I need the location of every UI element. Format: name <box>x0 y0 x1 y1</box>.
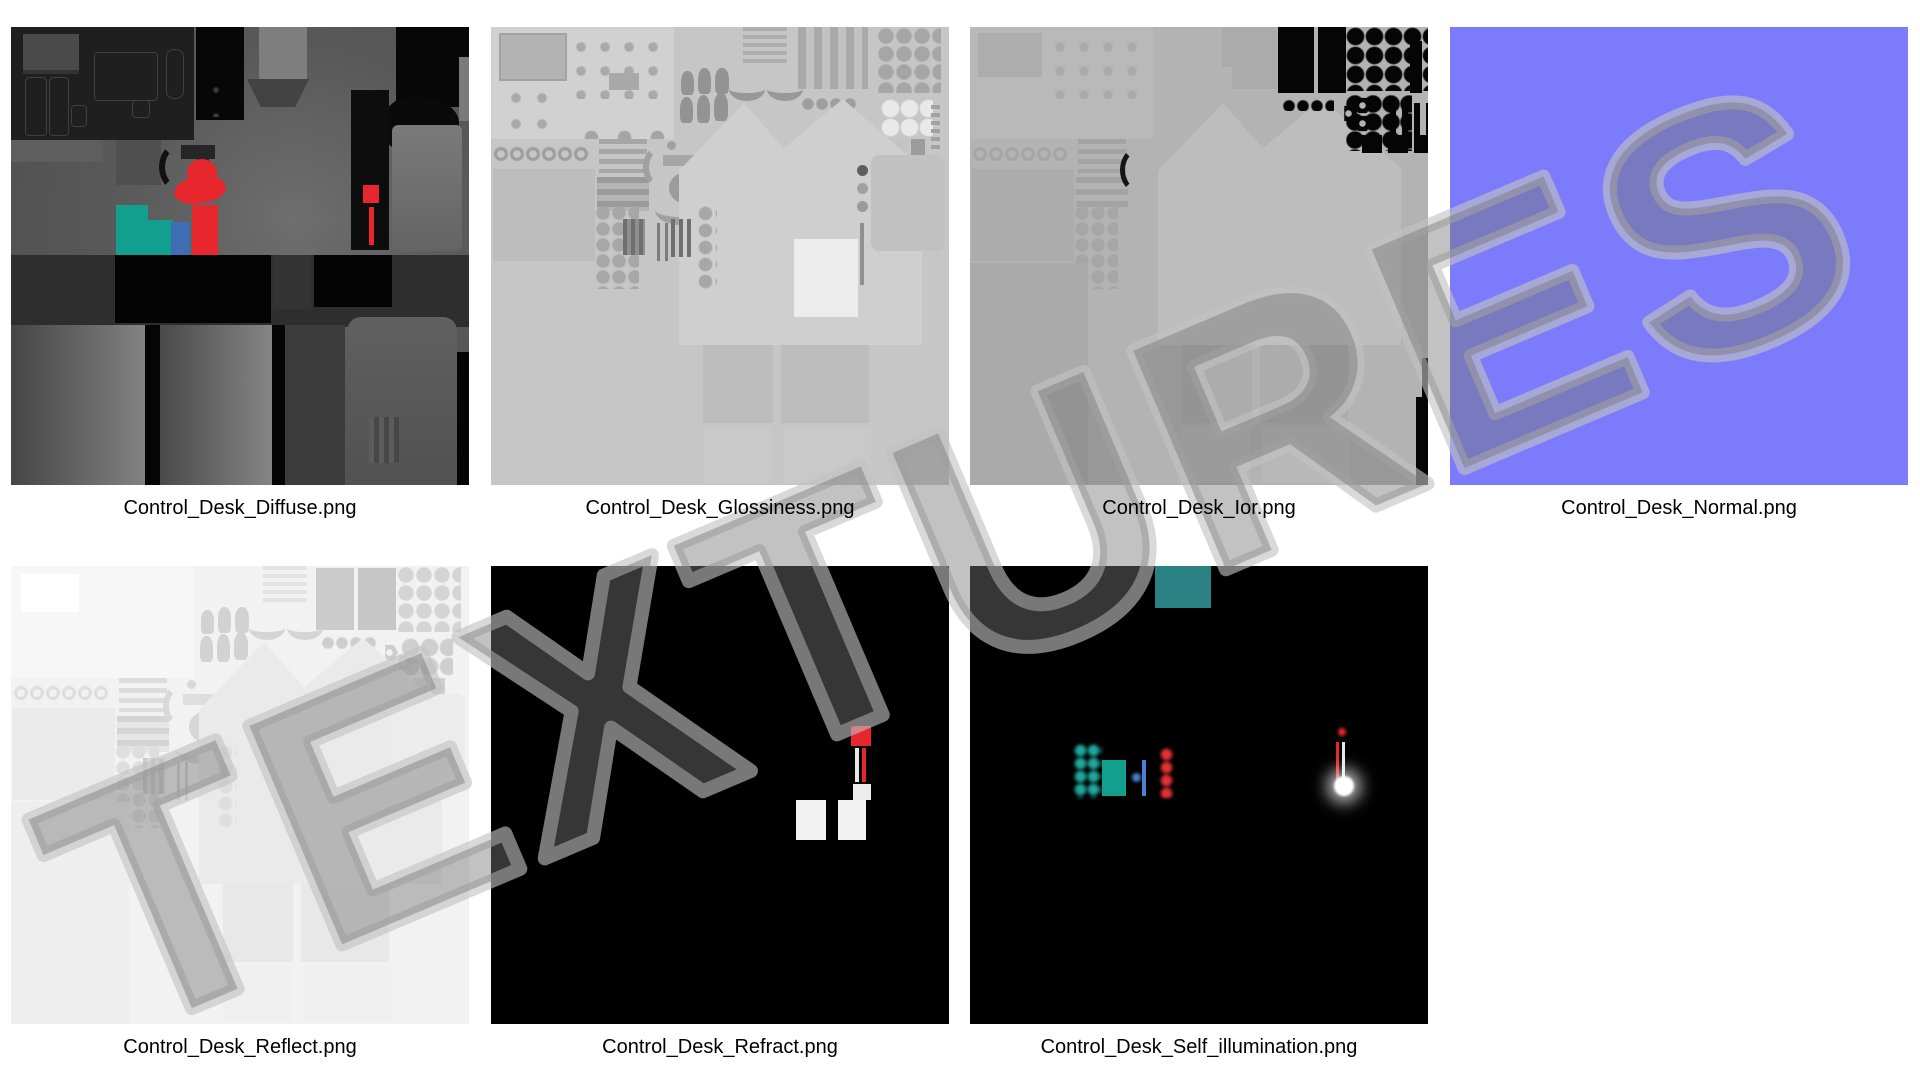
uv-shape <box>1232 27 1277 89</box>
texture-filename-label: Control_Desk_Self_illumination.png <box>970 1036 1428 1059</box>
uv-figure <box>715 68 729 94</box>
texture-filename-label: Control_Desk_Normal.png <box>1450 497 1908 520</box>
uv-dot <box>857 183 868 194</box>
uv-shape <box>369 417 399 463</box>
uv-shape <box>1262 427 1350 483</box>
uv-shape <box>314 255 392 307</box>
uv-black-rect <box>1362 135 1382 153</box>
uv-shape <box>783 427 871 483</box>
uv-figure <box>200 636 213 662</box>
uv-shape <box>223 966 291 1022</box>
uv-knob-cluster <box>397 566 461 632</box>
white-square <box>838 800 866 840</box>
uv-panel <box>871 155 945 251</box>
uv-line <box>177 762 180 800</box>
uv-shape <box>94 52 158 101</box>
uv-black-bar <box>1416 397 1428 485</box>
indicator-white-line <box>855 748 859 782</box>
uv-dot <box>857 165 868 176</box>
uv-screen <box>499 33 567 81</box>
uv-shape <box>11 325 145 485</box>
uv-rings-row <box>13 684 109 702</box>
uv-line <box>860 223 864 285</box>
white-square <box>796 800 826 840</box>
uv-screen <box>23 34 79 74</box>
uv-black-arc <box>1120 147 1156 193</box>
uv-arc <box>729 77 765 101</box>
uv-shape <box>25 77 47 136</box>
uv-figure <box>681 71 694 95</box>
uv-shape <box>431 678 445 695</box>
uv-panel <box>972 169 1074 261</box>
uv-shape <box>609 73 639 90</box>
uv-shape <box>132 100 150 118</box>
teal-block <box>116 205 148 261</box>
uv-black-rect <box>1414 135 1428 153</box>
uv-shape <box>911 139 925 156</box>
uv-figure <box>235 607 249 633</box>
uv-buttons <box>1048 35 1148 99</box>
uv-shape <box>703 427 771 483</box>
uv-black-pills <box>1282 99 1334 111</box>
uv-shape <box>160 325 272 485</box>
red-led-column <box>1160 748 1173 798</box>
uv-screen <box>21 574 79 612</box>
uv-striped-panel <box>798 27 868 89</box>
uv-shape <box>273 255 311 309</box>
texture-filename-label: Control_Desk_Refract.png <box>491 1036 949 1059</box>
texture-thumbnail-normal[interactable] <box>1450 27 1908 485</box>
uv-figure <box>218 607 231 633</box>
uv-dot <box>667 141 676 150</box>
blue-line <box>1142 760 1146 796</box>
uv-knobs <box>575 121 675 139</box>
uv-panel <box>391 694 465 790</box>
uv-shape <box>272 325 285 485</box>
uv-desk-top <box>679 103 791 345</box>
uv-panel <box>13 708 115 800</box>
uv-black-bar <box>1410 41 1422 93</box>
uv-figure <box>234 632 248 660</box>
uv-dots-col <box>217 744 237 828</box>
texture-filename-label: Control_Desk_Glossiness.png <box>491 497 949 520</box>
uv-shape <box>459 57 469 121</box>
uv-screws <box>203 77 239 117</box>
uv-shape <box>11 140 103 162</box>
uv-shape <box>392 125 462 251</box>
uv-shape <box>285 325 345 485</box>
uv-shape <box>301 884 389 962</box>
uv-figure <box>697 95 710 123</box>
uv-shape <box>781 345 869 423</box>
uv-dots-col <box>697 205 717 289</box>
uv-figure <box>201 610 214 634</box>
uv-black-rect <box>1278 27 1314 93</box>
uv-knob-cluster <box>877 27 941 93</box>
uv-shape <box>703 345 773 423</box>
texture-thumbnail-ior[interactable] <box>970 27 1428 485</box>
blue-led <box>1132 773 1141 782</box>
uv-dot <box>857 201 868 212</box>
uv-shape <box>1260 345 1348 423</box>
uv-line <box>657 223 660 261</box>
uv-shape <box>599 139 647 173</box>
uv-dot <box>187 680 196 689</box>
red-led <box>1338 728 1346 736</box>
uv-black-rect <box>1388 135 1408 153</box>
teal-panel <box>1155 566 1211 608</box>
uv-desk-top <box>199 642 311 884</box>
uv-shape <box>11 802 129 1024</box>
texture-thumbnail-glossiness[interactable] <box>491 27 949 485</box>
uv-black-bar <box>1422 358 1428 398</box>
texture-thumbnail-self-illumination[interactable] <box>970 566 1428 1024</box>
uv-rings-row <box>972 145 1068 163</box>
uv-arc <box>249 616 285 640</box>
uv-arc <box>287 616 323 640</box>
uv-shape <box>347 317 457 485</box>
uv-shape <box>166 49 184 99</box>
uv-shape <box>1182 345 1252 423</box>
uv-shape <box>49 77 69 136</box>
texture-thumbnail-reflect[interactable] <box>11 566 469 1024</box>
uv-buttons <box>503 85 563 133</box>
uv-rings-row <box>493 145 589 163</box>
red-indicator-line <box>369 207 374 245</box>
uv-shape <box>671 219 693 257</box>
uv-shape <box>457 352 469 485</box>
white-glow-lamp <box>1334 776 1354 796</box>
texture-gallery-page: Control_Desk_Diffuse.png <box>0 0 1920 1080</box>
texture-filename-label: Control_Desk_Ior.png <box>970 497 1428 520</box>
uv-shape <box>119 678 167 712</box>
uv-shape <box>71 105 87 127</box>
teal-led-grid <box>1074 744 1102 798</box>
texture-thumbnail-diffuse[interactable] <box>11 27 469 485</box>
uv-panel <box>493 169 595 261</box>
uv-desk-top <box>1158 103 1270 345</box>
uv-shape <box>1182 427 1250 483</box>
white-small-rect <box>853 784 871 800</box>
uv-black-rect <box>1318 27 1346 93</box>
uv-domes <box>881 99 933 137</box>
red-indicator-cap <box>851 726 871 746</box>
uv-textured-panel <box>316 568 354 630</box>
uv-shape <box>1078 139 1126 173</box>
texture-thumbnail-refract[interactable] <box>491 566 949 1024</box>
uv-shape <box>115 255 271 323</box>
uv-ladder <box>931 105 940 149</box>
uv-funnel <box>247 79 309 107</box>
teal-screen <box>1102 760 1126 796</box>
uv-line <box>665 223 668 261</box>
uv-screen <box>978 33 1042 77</box>
red-indicator-line <box>862 748 866 782</box>
uv-figure <box>714 93 728 121</box>
uv-shape <box>970 263 1088 485</box>
texture-filename-label: Control_Desk_Diffuse.png <box>11 497 469 520</box>
uv-textured-panel <box>358 568 396 630</box>
uv-shape <box>623 219 645 255</box>
uv-line <box>185 762 188 800</box>
uv-shape <box>143 758 165 794</box>
uv-figure <box>217 634 230 662</box>
uv-shape <box>303 966 391 1022</box>
uv-shape <box>743 27 787 67</box>
uv-shape <box>259 27 307 79</box>
red-block <box>192 205 218 262</box>
uv-shape <box>223 884 293 962</box>
texture-filename-label: Control_Desk_Reflect.png <box>11 1036 469 1059</box>
uv-shape <box>145 325 160 485</box>
uv-shape <box>263 566 307 606</box>
uv-shape <box>116 140 161 185</box>
red-indicator-cap <box>363 185 379 203</box>
uv-white-square <box>794 239 858 317</box>
uv-figure <box>680 97 693 123</box>
uv-figure <box>698 68 711 94</box>
